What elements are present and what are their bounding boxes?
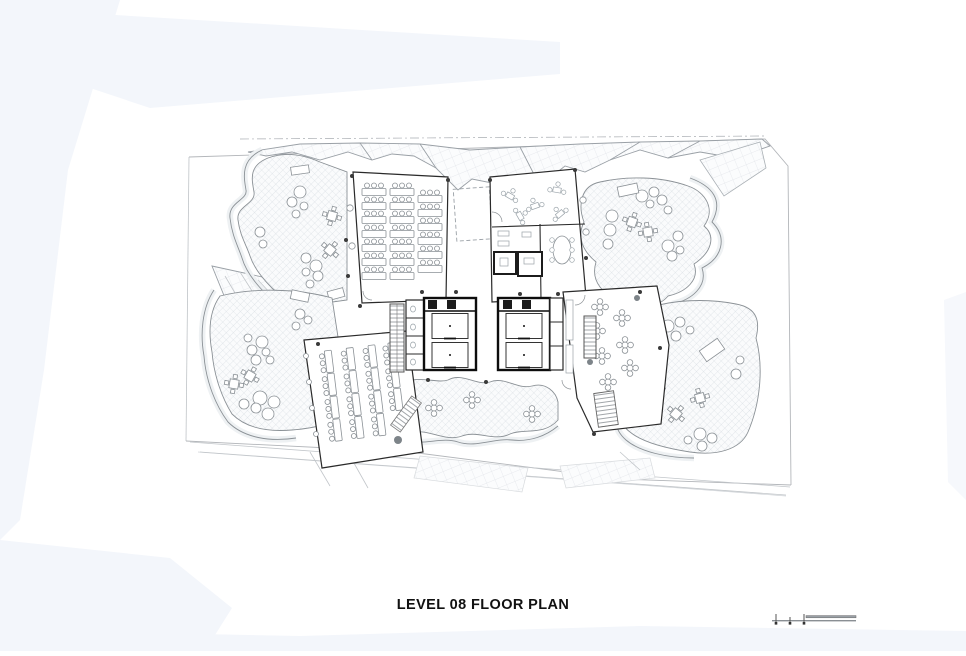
- drawing-sheet: LEVEL 08 FLOOR PLAN: [0, 0, 966, 651]
- terrace-south-band: [400, 377, 558, 443]
- elevator-bank-west: [424, 298, 476, 370]
- scale-bar: [772, 614, 856, 625]
- floor-plan-drawing: [0, 0, 966, 651]
- lounge-east: [490, 169, 586, 302]
- room-southeast: [563, 286, 669, 432]
- stair-east: [584, 316, 596, 358]
- elevator-bank-east: [498, 298, 550, 370]
- office-north: [353, 172, 493, 303]
- atrium-void-dashed: [453, 187, 493, 241]
- drawing-title: LEVEL 08 FLOOR PLAN: [0, 597, 966, 613]
- office-southwest: [304, 331, 424, 468]
- paper-margin-tint: [0, 0, 966, 651]
- stair-southeast: [594, 391, 619, 427]
